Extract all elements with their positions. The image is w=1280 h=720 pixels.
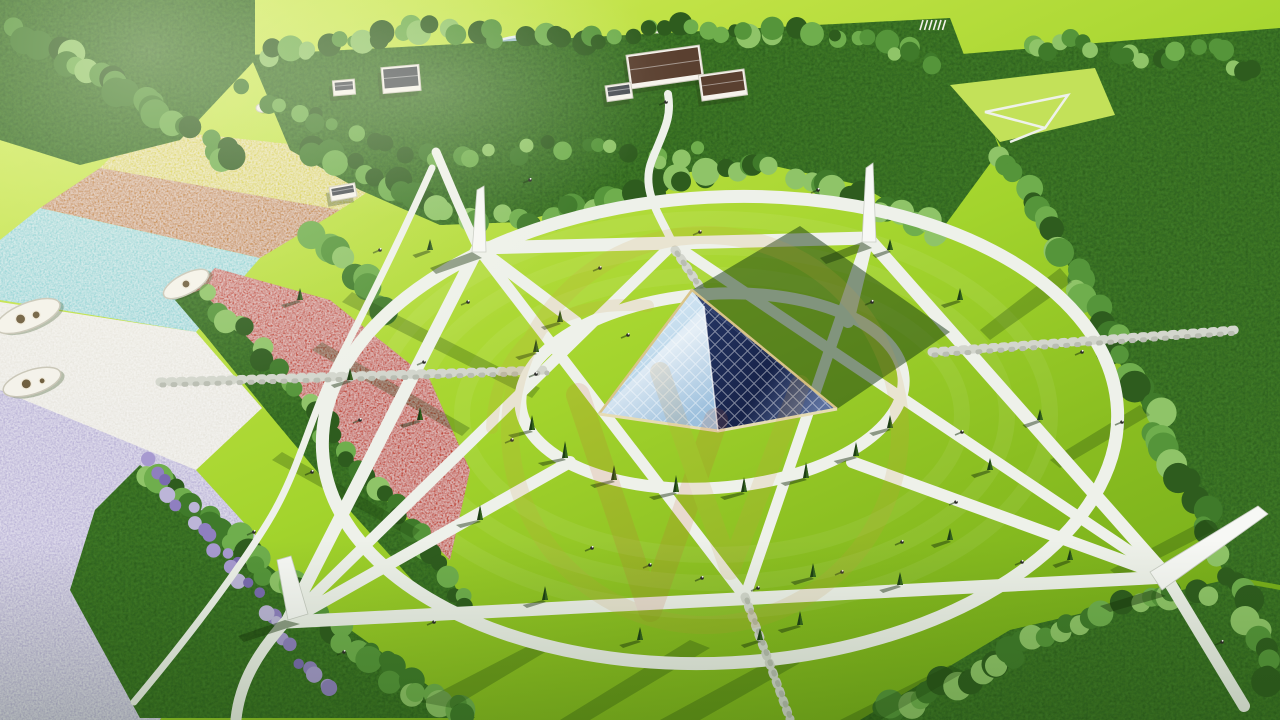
scene-root xyxy=(0,0,1280,720)
aerial-park-render xyxy=(0,0,1280,720)
scene-svg xyxy=(0,0,1280,720)
bottom-vignette xyxy=(0,0,1280,720)
